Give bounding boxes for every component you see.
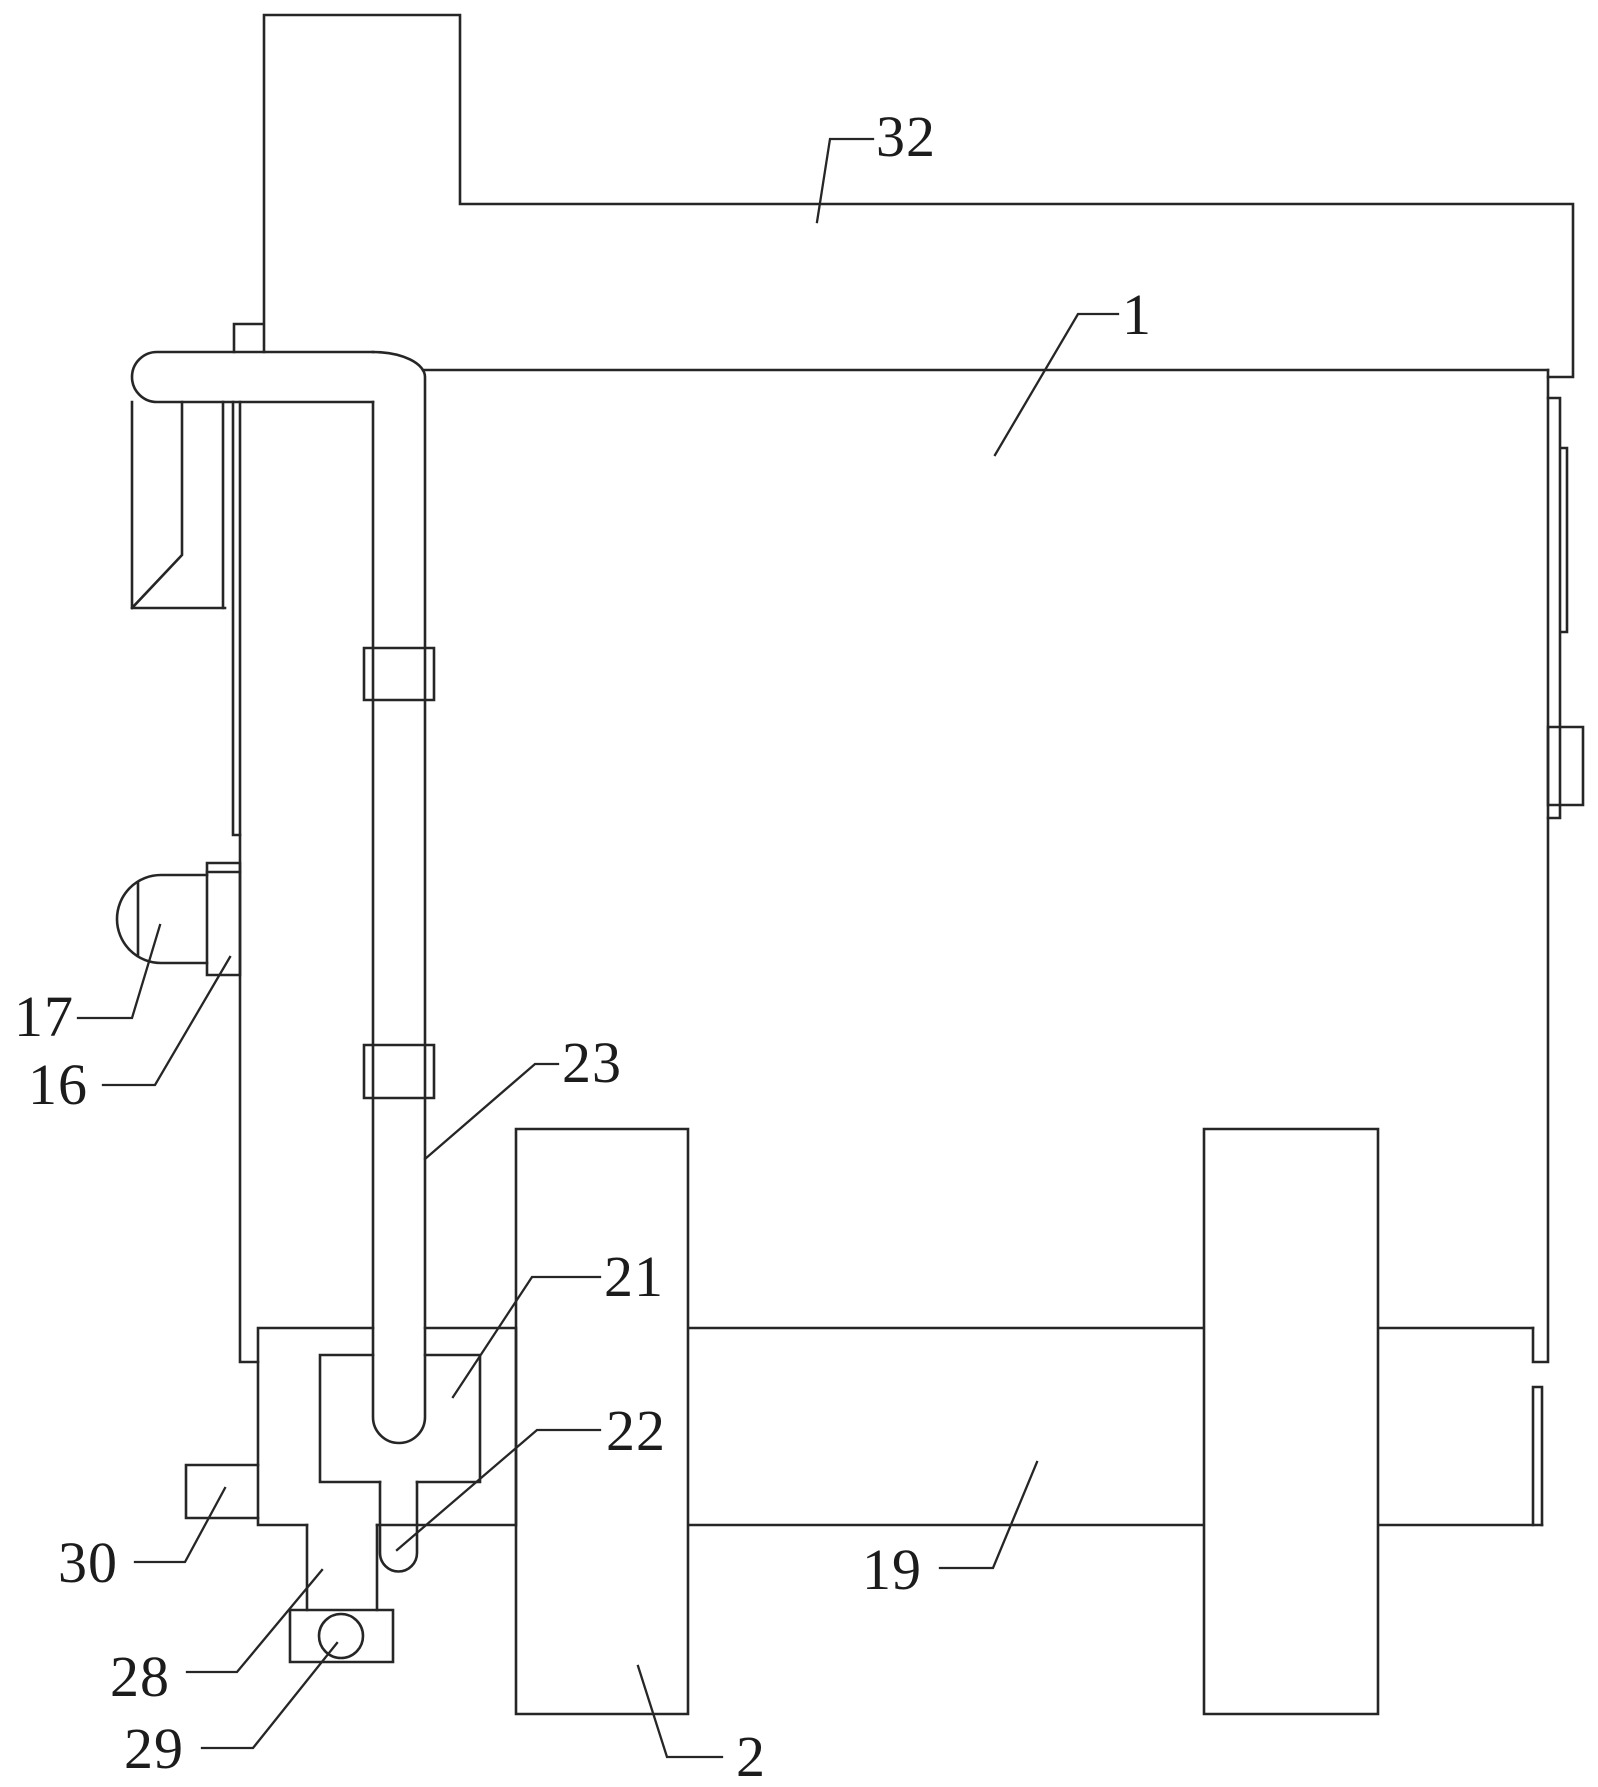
left-wall-liner xyxy=(223,402,240,835)
chimney-duct-outline xyxy=(234,15,1573,377)
label-16: 16 xyxy=(28,1056,88,1114)
gearbox-inner-box xyxy=(320,1355,480,1482)
leader-19 xyxy=(940,1462,1037,1568)
leader-17 xyxy=(78,925,160,1018)
rod-collar-lower xyxy=(364,1045,434,1098)
label-23: 23 xyxy=(562,1034,622,1092)
right-wheel xyxy=(1204,1129,1378,1714)
rod-collar-upper xyxy=(364,648,434,700)
conveyor-belt xyxy=(688,1328,1542,1525)
leader-32 xyxy=(817,139,873,222)
label-21: 21 xyxy=(604,1248,664,1306)
leader-30 xyxy=(135,1488,225,1562)
label-32: 32 xyxy=(876,108,936,166)
caster-housing xyxy=(290,1610,393,1662)
leader-28 xyxy=(187,1570,322,1672)
label-28: 28 xyxy=(110,1648,170,1706)
motor-mount xyxy=(207,863,240,975)
support-arm xyxy=(307,1525,377,1610)
label-29: 29 xyxy=(124,1720,184,1778)
caster-wheel xyxy=(319,1614,363,1658)
right-wall-block xyxy=(1548,727,1583,805)
label-17: 17 xyxy=(14,988,74,1046)
label-22: 22 xyxy=(606,1402,666,1460)
patent-figure: 32 1 17 16 23 21 22 30 28 29 19 2 xyxy=(0,0,1598,1787)
label-19: 19 xyxy=(862,1541,922,1599)
main-box-right-wall xyxy=(1533,370,1548,1362)
vertical-rod xyxy=(373,352,425,1443)
leader-29 xyxy=(202,1643,337,1748)
label-2: 2 xyxy=(736,1728,766,1786)
motor xyxy=(117,875,207,963)
main-box-left-wall xyxy=(240,402,258,1362)
pin xyxy=(380,1482,417,1572)
gearbox-housing xyxy=(258,1328,516,1525)
left-hood xyxy=(132,402,225,608)
label-1: 1 xyxy=(1122,286,1152,344)
label-30: 30 xyxy=(58,1534,118,1592)
belt-right-bracket xyxy=(1533,1387,1542,1525)
feed-capsule xyxy=(132,352,373,402)
leader-1 xyxy=(995,314,1118,455)
right-wall-liner xyxy=(1548,398,1567,818)
drawing-lines xyxy=(0,0,1598,1787)
